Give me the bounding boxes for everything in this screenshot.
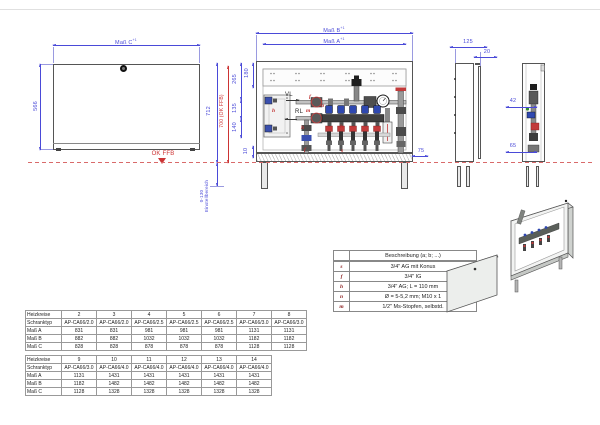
main-view-base-band — [256, 153, 413, 162]
ext-line — [53, 47, 54, 63]
dim-label-mass-b: Maß B+1 — [294, 25, 374, 34]
table-cell: m — [334, 302, 350, 312]
manifold-assembly-graphic — [256, 61, 413, 153]
table-cell: 981 — [167, 327, 202, 335]
legend-key-header — [334, 251, 350, 261]
table-cell: 1482 — [202, 380, 237, 388]
table-cell: 1182 — [62, 380, 97, 388]
front-view-foot-left — [56, 148, 61, 151]
dim-line-712 — [217, 63, 218, 163]
part-letter-f: f — [304, 148, 306, 153]
dim-label-20: 20 — [478, 49, 496, 55]
table-cell: 1431 — [167, 372, 202, 380]
table-cell: 14 — [237, 356, 272, 364]
table-cell: 1128 — [237, 343, 272, 351]
table-cell: 1128 — [62, 388, 97, 396]
manifold-stations — [326, 106, 381, 152]
ext-line — [40, 64, 53, 65]
isometric-views-graphic — [435, 190, 600, 325]
table-cell: AP-CA66/3.0 — [272, 319, 307, 327]
table-row: Maß A113114311431143114311431 — [26, 372, 272, 380]
dim-line-566 — [40, 64, 41, 150]
dim-line-65 — [506, 152, 537, 153]
ext-line — [40, 149, 53, 150]
wall-bracket — [264, 95, 290, 137]
table-cell: 1328 — [167, 388, 202, 396]
hinge-dot — [454, 96, 456, 98]
side-view-cabinet — [455, 63, 474, 162]
vl-label: VL — [285, 92, 293, 98]
iso-door-panel — [447, 255, 498, 312]
hinge-dot — [454, 78, 456, 80]
table-cell: 882 — [97, 335, 132, 343]
table-cell: 1482 — [167, 380, 202, 388]
dim-line-10 — [253, 146, 254, 158]
table-cell: 1328 — [132, 388, 167, 396]
table-cell: Maß A — [26, 372, 62, 380]
ok-ffb-label: OK FFB — [145, 151, 181, 157]
floor-reference-dashed-line — [28, 162, 592, 163]
dim-line-42 — [506, 107, 537, 108]
door-lock-icon — [120, 65, 127, 72]
dim-line-75 — [412, 156, 428, 157]
dim-line-700 — [228, 66, 229, 163]
table-cell: 1431 — [202, 372, 237, 380]
dim-label-75: 75 — [412, 148, 430, 154]
table-cell: 828 — [62, 343, 97, 351]
table-cell: 831 — [62, 327, 97, 335]
table-cell: AP-CA66/2.5 — [202, 319, 237, 327]
rl-flow-arrow-icon — [285, 119, 297, 120]
table-cell: AP-CA66/2.0 — [97, 319, 132, 327]
vl-flow-arrow-icon — [286, 100, 299, 101]
dim-label-mass-c: Maß C+1 — [86, 37, 166, 46]
rl-label: RL — [295, 109, 303, 115]
table-row: Maß C82882887887887811281128 — [26, 343, 307, 351]
ext-line — [412, 35, 413, 61]
part-letter-h: h — [301, 126, 304, 131]
main-view-leg-left — [261, 162, 268, 189]
table-cell: AP-CA66/4.0 — [237, 364, 272, 372]
dim-label-10: 10 — [243, 145, 249, 157]
table-cell: AP-CA66/4.0 — [97, 364, 132, 372]
table-row: Maß B88288210321032103211821182 — [26, 335, 307, 343]
dim-line-140 — [241, 119, 242, 138]
table-cell: Maß C — [26, 388, 62, 396]
table-cell: 1128 — [272, 343, 307, 351]
part-letter-n: n — [321, 104, 324, 109]
side-view-leg-left — [457, 166, 461, 187]
table-cell: s — [334, 262, 350, 272]
table-row: Maß B118214821482148214821482 — [26, 380, 272, 388]
table-cell: Maß B — [26, 380, 62, 388]
dim-line-135 — [241, 100, 242, 119]
table-cell: 981 — [132, 327, 167, 335]
table-cell: Maß B — [26, 335, 62, 343]
table-cell: 1431 — [97, 372, 132, 380]
table-cell: 1328 — [97, 388, 132, 396]
table-cell: Heizkreise — [26, 356, 62, 364]
table-cell: f — [334, 272, 350, 282]
table-row: SchranktypAP-CA66/3.0AP-CA66/4.0AP-CA66/… — [26, 364, 272, 372]
dim-line-125 — [450, 47, 487, 48]
table-cell: 10 — [97, 356, 132, 364]
dim-label-125: 125 — [450, 39, 486, 45]
table-row: Maß C112813281328132813281328 — [26, 388, 272, 396]
table-cell: 11 — [132, 356, 167, 364]
table-cell: 828 — [97, 343, 132, 351]
part-letter-h: h — [272, 109, 275, 114]
dim-label-42: 42 — [505, 98, 521, 104]
table-cell: AP-CA66/4.0 — [202, 364, 237, 372]
hinge-dot — [454, 132, 456, 134]
table-cell: Maß C — [26, 343, 62, 351]
part-letter-h: h — [340, 125, 343, 130]
table-cell: 1131 — [272, 327, 307, 335]
dim-line-180 — [253, 63, 254, 88]
dim-label-712: 712 — [206, 102, 212, 120]
table-row: Heizkreise2345678 — [26, 311, 307, 319]
table-cell: n — [334, 292, 350, 302]
table-cell: AP-CA66/4.0 — [132, 364, 167, 372]
table-cell: 878 — [202, 343, 237, 351]
table-cell: 12 — [167, 356, 202, 364]
table-cell: 878 — [167, 343, 202, 351]
table-cell: 1482 — [237, 380, 272, 388]
table-cell: AP-CA66/4.0 — [167, 364, 202, 372]
table-cell: 2 — [62, 311, 97, 319]
dim-label-700-okffb: 700 (OK FFB) — [219, 91, 225, 131]
dim-line-range — [217, 163, 218, 186]
table-cell: 9 — [62, 356, 97, 364]
table-cell: 1131 — [62, 372, 97, 380]
table-cell: 882 — [62, 335, 97, 343]
dim-label-180: 180 — [244, 65, 250, 81]
table-cell: 1182 — [272, 335, 307, 343]
table-cell: 1482 — [97, 380, 132, 388]
front-view-foot-right — [190, 148, 195, 151]
dimension-table-1: Heizkreise2345678SchranktypAP-CA66/2.0AP… — [25, 310, 307, 351]
table-cell: AP-CA66/2.0 — [62, 319, 97, 327]
ext-line — [199, 47, 200, 63]
section-view-graphic — [522, 63, 545, 162]
front-view-door-bottom-line — [53, 143, 200, 144]
table-cell: h — [334, 282, 350, 292]
table-cell: 1131 — [237, 327, 272, 335]
table-cell: 981 — [202, 327, 237, 335]
front-view-cabinet — [53, 64, 200, 150]
dim-label-65: 65 — [505, 143, 521, 149]
table-cell: Maß A — [26, 327, 62, 335]
dim-label-140: 140 — [232, 119, 238, 135]
table-cell: AP-CA66/3.0 — [237, 319, 272, 327]
part-letter-s: s — [341, 149, 343, 154]
iso-cabinet-open — [511, 200, 573, 292]
table-cell: AP-CA66/3.0 — [62, 364, 97, 372]
table-row: SchranktypAP-CA66/2.0AP-CA66/2.0AP-CA66/… — [26, 319, 307, 327]
part-letter-f: f — [309, 95, 311, 100]
main-view-leg-right — [401, 162, 408, 189]
table-cell: 5 — [167, 311, 202, 319]
table-cell: 1032 — [167, 335, 202, 343]
table-cell: 1482 — [132, 380, 167, 388]
ext-line — [256, 35, 257, 61]
table-row: Heizkreise91011121314 — [26, 356, 272, 364]
table-cell: 4 — [132, 311, 167, 319]
table-cell: 1328 — [237, 388, 272, 396]
ext-line — [455, 49, 456, 63]
dim-label-566: 566 — [33, 97, 39, 115]
table-cell: 6 — [202, 311, 237, 319]
table-cell: Heizkreise — [26, 311, 62, 319]
table-cell: 7 — [237, 311, 272, 319]
side-view-leg-right — [466, 166, 470, 187]
table-row: Maß A83183198198198111311131 — [26, 327, 307, 335]
table-cell: 1431 — [237, 372, 272, 380]
sheet-border-line — [0, 9, 600, 10]
table-cell: 1032 — [132, 335, 167, 343]
ext-line — [210, 186, 224, 187]
table-cell: 1032 — [202, 335, 237, 343]
section-view-leg-left — [526, 166, 529, 187]
table-cell: AP-CA66/2.5 — [167, 319, 202, 327]
dimension-table-2: Heizkreise91011121314SchranktypAP-CA66/3… — [25, 355, 272, 396]
dim-label-einstellbereich: 0-130 Einstellbereich — [199, 169, 209, 223]
dim-label-mass-a: Maß A+1 — [294, 36, 374, 45]
dim-label-265: 265 — [232, 71, 238, 87]
dim-label-135: 135 — [232, 100, 238, 116]
table-cell: Schranktyp — [26, 364, 62, 372]
table-cell: 1431 — [132, 372, 167, 380]
hinge-dot — [454, 114, 456, 116]
ok-ffb-arrow-icon — [158, 158, 166, 164]
dim-line-20 — [474, 57, 497, 58]
part-letter-m: m — [306, 109, 310, 114]
table-cell: AP-CA66/2.5 — [132, 319, 167, 327]
table-cell: 878 — [132, 343, 167, 351]
table-cell: 1182 — [237, 335, 272, 343]
table-cell: Schranktyp — [26, 319, 62, 327]
side-view-door-leaf — [478, 66, 481, 159]
section-view-leg-right — [536, 166, 539, 187]
table-cell: 3 — [97, 311, 132, 319]
table-cell: 1328 — [202, 388, 237, 396]
table-cell: 831 — [97, 327, 132, 335]
heating-manifold — [318, 106, 390, 152]
table-cell: 13 — [202, 356, 237, 364]
range-text: Einstellbereich — [204, 169, 209, 223]
table-cell: 8 — [272, 311, 307, 319]
dim-line-265 — [241, 63, 242, 100]
technical-drawing-sheet: Maß C+1 566 OK FFB 712 700 (OK FFB) 265 … — [0, 0, 600, 425]
